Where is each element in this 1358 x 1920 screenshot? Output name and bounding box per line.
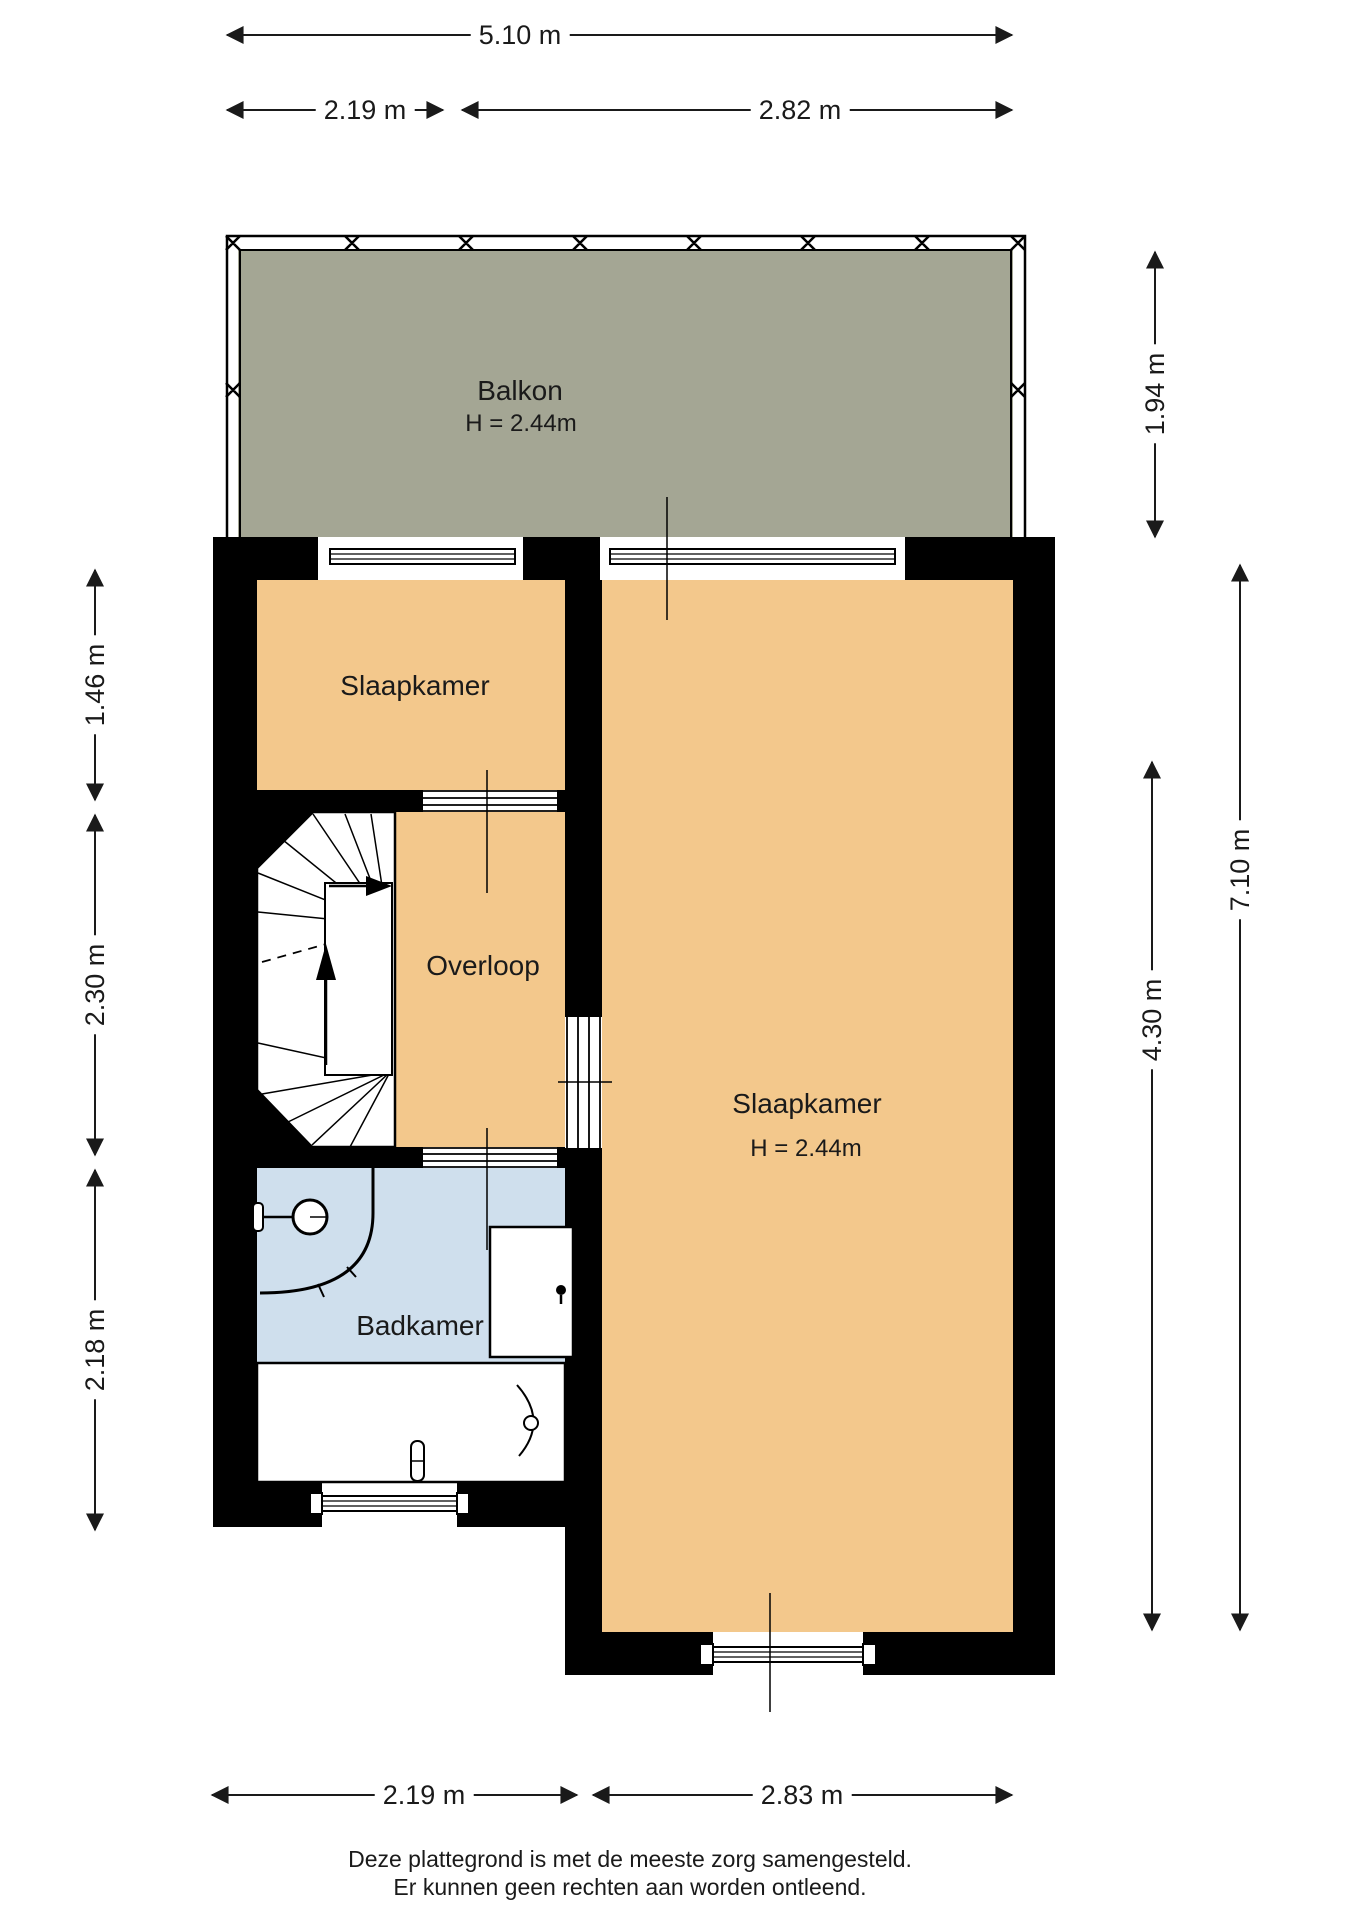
room-height-balkon: H = 2.44m — [465, 410, 576, 438]
door-leaf-icon — [490, 1227, 573, 1357]
stairs-icon — [257, 812, 395, 1147]
dim-right-lower: 4.30 m — [1137, 971, 1167, 1070]
room-label-overloop: Overloop — [426, 950, 540, 982]
room-label-balkon: Balkon — [477, 375, 563, 407]
dim-bottom-right: 2.83 m — [753, 1780, 852, 1810]
window-icon — [310, 1482, 469, 1527]
wall-right — [1013, 537, 1055, 1675]
dim-top-right: 2.82 m — [751, 95, 850, 125]
dim-top-total: 5.10 m — [471, 20, 570, 50]
door-threshold-icon — [423, 790, 557, 812]
room-label-slaapkamer-left: Slaapkamer — [340, 670, 489, 702]
door-threshold-icon — [423, 1147, 557, 1168]
dim-right-total: 7.10 m — [1225, 821, 1255, 920]
wall-left — [213, 537, 257, 1527]
balcony — [226, 236, 1025, 537]
footer-disclaimer-line2: Er kunnen geen rechten aan worden ontlee… — [393, 1874, 866, 1901]
window-icon — [600, 537, 905, 580]
dim-top-left: 2.19 m — [316, 95, 415, 125]
dim-bottom-left: 2.19 m — [375, 1780, 474, 1810]
floorplan-drawing — [0, 0, 1358, 1920]
window-icon — [318, 537, 523, 580]
dim-left-lower: 2.18 m — [80, 1301, 110, 1400]
dim-right-balcony: 1.94 m — [1140, 345, 1170, 444]
window-icon — [700, 1632, 876, 1675]
bathtub-icon — [257, 1363, 565, 1482]
balcony-floor — [238, 250, 1013, 537]
floorplan-canvas: 5.10 m 2.19 m 2.82 m 1.46 m 2.30 m 2.18 … — [0, 0, 1358, 1920]
dim-left-upper: 1.46 m — [80, 636, 110, 735]
room-label-slaapkamer-right: Slaapkamer — [732, 1088, 881, 1120]
footer-disclaimer-line1: Deze plattegrond is met de meeste zorg s… — [348, 1846, 912, 1873]
dim-left-middle: 2.30 m — [80, 936, 110, 1035]
room-label-badkamer: Badkamer — [356, 1310, 484, 1342]
room-height-slaapkamer-right: H = 2.44m — [750, 1135, 861, 1163]
